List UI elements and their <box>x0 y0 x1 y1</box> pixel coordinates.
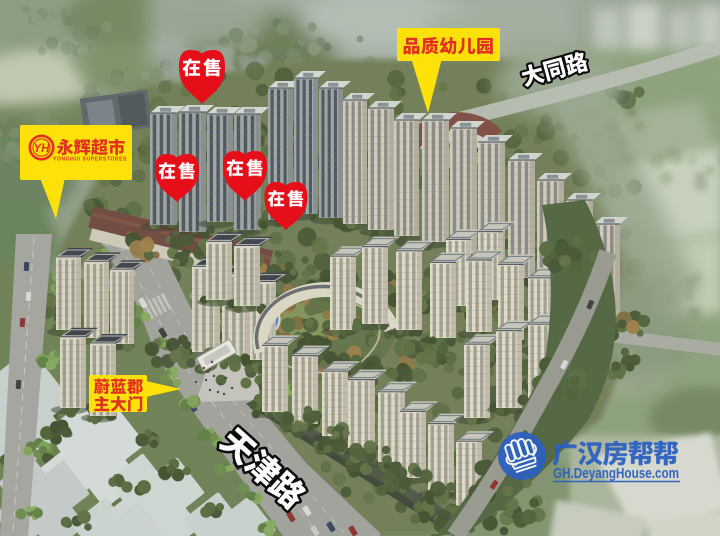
svg-text:YH: YH <box>34 143 51 155</box>
svg-text:GH.DeyangHouse.com: GH.DeyangHouse.com <box>553 465 679 482</box>
svg-text:YONGHUI SUPERSTORES: YONGHUI SUPERSTORES <box>53 157 127 163</box>
